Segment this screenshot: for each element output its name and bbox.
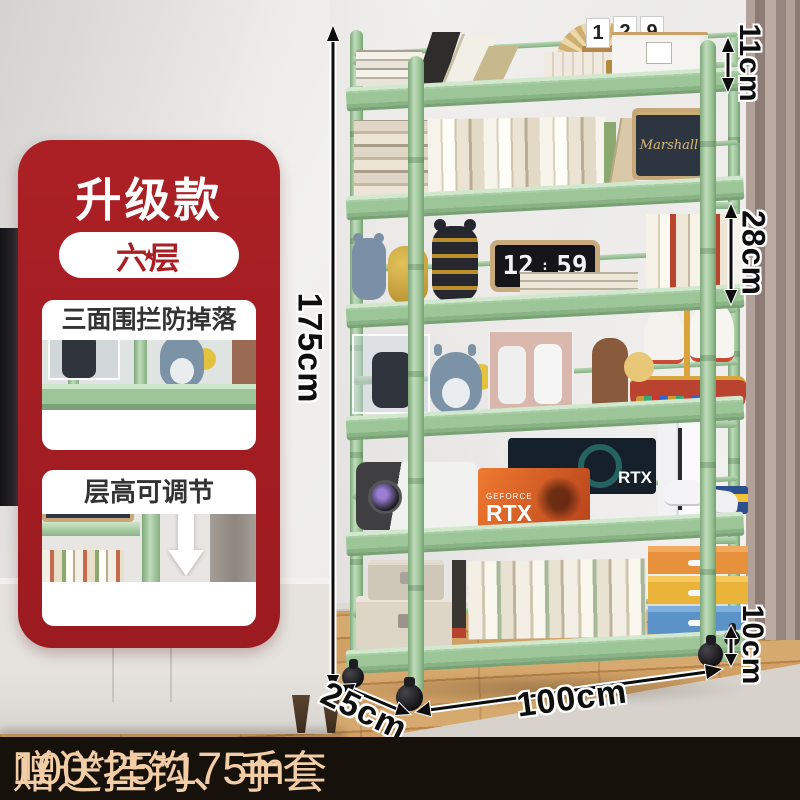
gpu-box-eye-graphic [536, 476, 582, 522]
totoro-ear [434, 344, 442, 356]
shelf-post-front-left [408, 56, 424, 692]
badge-title: 升级款 [18, 164, 280, 230]
star-icon: ★ [141, 247, 156, 264]
feature-card-adjustable: 层高可调节 [42, 470, 256, 626]
book-spine-dark [452, 560, 466, 638]
caster-wheel [698, 642, 723, 667]
mini-shelf-board [42, 522, 140, 536]
bear-ear [353, 233, 363, 243]
totoro-ear [468, 344, 476, 356]
gpu-box-back-label: RTX [618, 468, 652, 488]
bear-figure-blue [352, 238, 386, 300]
book-row [646, 214, 746, 288]
toy-figure-white [534, 344, 562, 404]
bear-ear [374, 233, 384, 243]
box-label [646, 42, 672, 64]
dim-label-wheel-clearance: 10cm [735, 605, 769, 686]
bear-figure-black-gold [432, 226, 478, 302]
tier-count-pill: ★ 六层 ★ [59, 232, 239, 278]
mini-totoro-belly [170, 358, 194, 384]
mini-figure [62, 334, 96, 378]
mini-shelf-board [42, 384, 256, 410]
feature-card-guard: 三面围拦防掉落 [42, 300, 256, 450]
dim-label-top-guard: 11cm [732, 23, 766, 102]
projector-lens [368, 480, 402, 514]
dim-label-total-height: 175cm [290, 293, 329, 404]
calendar-card: 1 [586, 18, 610, 48]
product-image: 1 2 9 Marshall 12:59 RTX GEFO [0, 0, 800, 800]
feature-caption: 三面围拦防掉落 [42, 300, 256, 340]
tv-edge [0, 228, 19, 506]
book-row [467, 558, 646, 639]
footer-bar: 100*25*175m / 赠送挂钩、手套 [0, 737, 800, 800]
dim-label-tier-spacing: 28cm [735, 210, 772, 296]
toy-figure-white [498, 346, 526, 404]
totoro-belly [442, 378, 470, 408]
bear-ear [434, 219, 446, 231]
footer-gift-text: 赠送挂钩、手套 [12, 736, 327, 800]
marshall-speaker: Marshall [636, 112, 702, 176]
figure-silhouette [372, 352, 412, 408]
mini-book-row [42, 550, 124, 582]
bear-ear [464, 219, 476, 231]
feature-caption: 层高可调节 [42, 470, 256, 514]
shelf-post-front-right [700, 40, 716, 656]
promo-badge: 升级款 ★ 六层 ★ 三面围拦防掉落 [18, 140, 280, 648]
ship-figurehead [624, 352, 654, 382]
ship-sail [644, 308, 684, 364]
game-controller [664, 480, 704, 506]
